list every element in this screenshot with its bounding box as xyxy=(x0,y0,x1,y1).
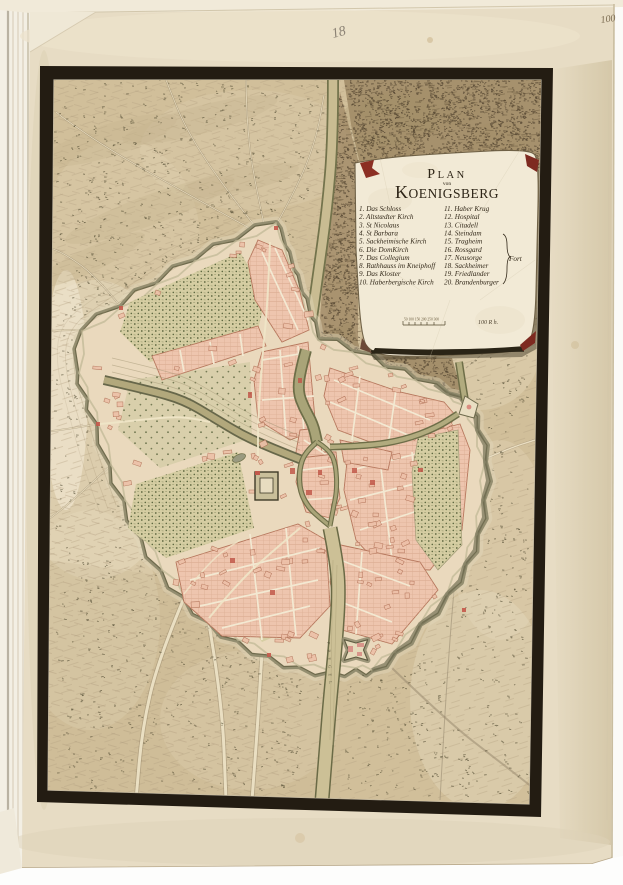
svg-text:11. Haber Krug: 11. Haber Krug xyxy=(444,205,490,213)
svg-text:6. Die DomKirch: 6. Die DomKirch xyxy=(359,246,409,254)
svg-text:13. Citadell: 13. Citadell xyxy=(444,221,478,229)
svg-text:1. Das Schloss: 1. Das Schloss xyxy=(359,205,401,213)
svg-text:8. Rathhauss im Kneiphoff: 8. Rathhauss im Kneiphoff xyxy=(359,262,436,270)
svg-text:20. Brandenburger: 20. Brandenburger xyxy=(444,278,499,286)
svg-text:15. Tragheim: 15. Tragheim xyxy=(444,238,482,246)
svg-text:100 R h.: 100 R h. xyxy=(478,320,498,326)
svg-text:17. Neusorge: 17. Neusorge xyxy=(444,254,483,262)
svg-text:19. Friedlander: 19. Friedlander xyxy=(444,270,490,278)
svg-text:7. Das Collegium: 7. Das Collegium xyxy=(359,254,410,262)
svg-text:50 100 150 200 250 300: 50 100 150 200 250 300 xyxy=(404,318,439,322)
svg-text:4. St Barbara: 4. St Barbara xyxy=(359,229,398,237)
svg-text:9. Das Kloster: 9. Das Kloster xyxy=(359,270,401,278)
svg-text:Fort: Fort xyxy=(508,255,523,263)
svg-text:14. Steindam: 14. Steindam xyxy=(444,229,482,237)
svg-text:2. Altstædter Kirch: 2. Altstædter Kirch xyxy=(359,213,414,221)
svg-text:PLAN: PLAN xyxy=(427,167,466,182)
svg-text:100: 100 xyxy=(600,13,616,26)
svg-text:18. Sackheimer: 18. Sackheimer xyxy=(444,262,489,270)
svg-text:10. Haberbergische Kirch: 10. Haberbergische Kirch xyxy=(359,278,434,286)
svg-text:5. Sackheimische Kirch: 5. Sackheimische Kirch xyxy=(359,238,427,246)
svg-text:3. St Nicolaus: 3. St Nicolaus xyxy=(358,221,399,229)
svg-text:12. Hospital: 12. Hospital xyxy=(444,213,480,221)
svg-text:16. Rossgard: 16. Rossgard xyxy=(444,246,482,254)
